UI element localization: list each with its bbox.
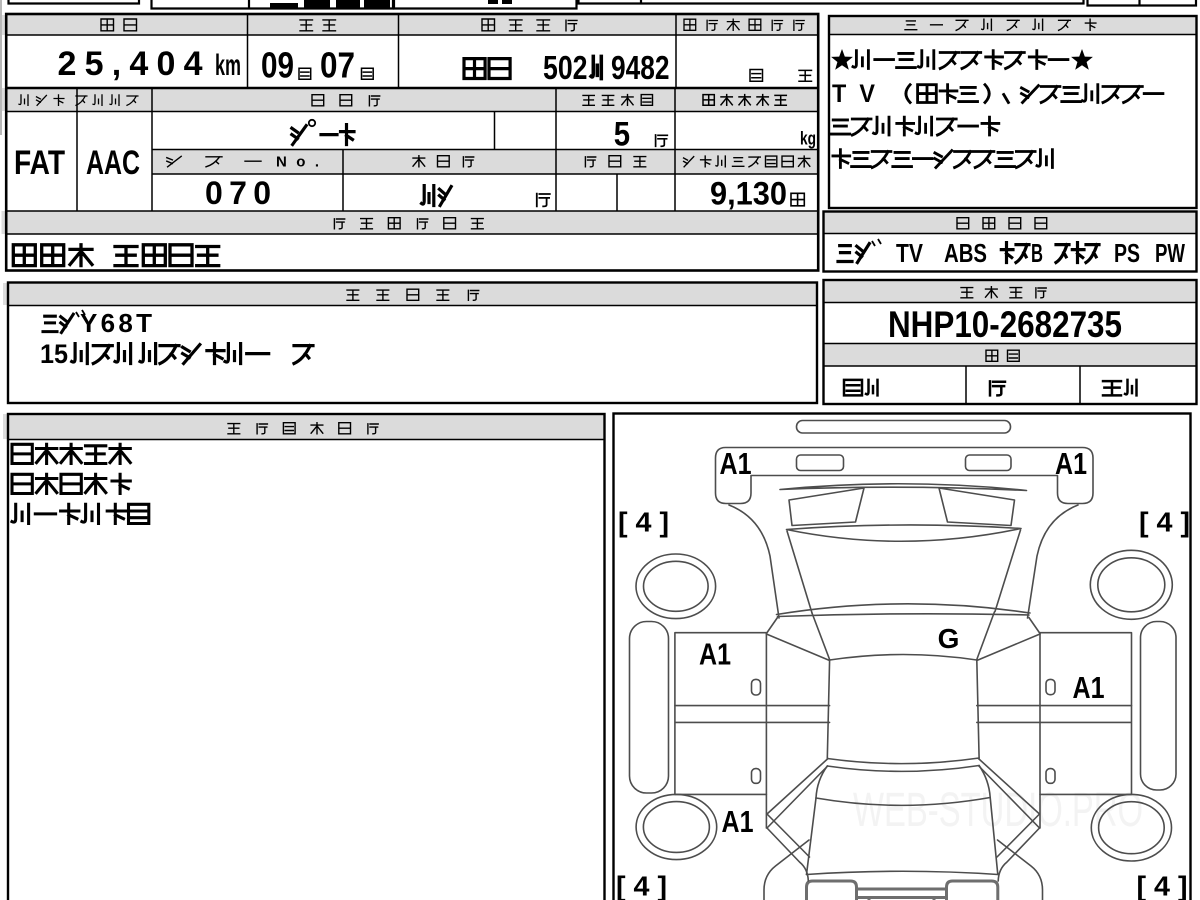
- svg-text:A1: A1: [1073, 670, 1105, 705]
- svg-text:WEB-STUDIO.PRO: WEB-STUDIO.PRO: [853, 784, 1143, 837]
- svg-text:PW: PW: [1155, 238, 1185, 268]
- svg-text:TV: TV: [896, 238, 924, 268]
- svg-text:AAC: AAC: [86, 144, 140, 182]
- svg-text:PS: PS: [1114, 238, 1140, 268]
- svg-text:km: km: [215, 49, 241, 82]
- svg-text:A1: A1: [720, 446, 752, 481]
- svg-text:09: 09: [261, 45, 294, 86]
- svg-text:A1: A1: [1055, 446, 1087, 481]
- svg-text:15: 15: [40, 339, 68, 369]
- svg-text:[ 4 ]: [ 4 ]: [1139, 507, 1190, 538]
- svg-text:G: G: [938, 623, 960, 654]
- svg-text:5: 5: [614, 116, 630, 154]
- svg-text:Y68T: Y68T: [80, 308, 152, 338]
- svg-text:No.: No.: [276, 154, 322, 171]
- svg-text:25,404: 25,404: [58, 45, 203, 83]
- svg-text:kg: kg: [800, 129, 816, 149]
- svg-text:[ 4 ]: [ 4 ]: [618, 507, 669, 538]
- svg-text:[ 4 ]: [ 4 ]: [1137, 871, 1188, 900]
- svg-text:FAT: FAT: [14, 144, 65, 182]
- svg-text:502: 502: [543, 49, 588, 86]
- svg-text:TV: TV: [832, 80, 888, 108]
- svg-text:NHP10-2682735: NHP10-2682735: [888, 304, 1122, 345]
- svg-text:B: B: [1031, 238, 1043, 268]
- svg-text:A1: A1: [699, 637, 731, 672]
- svg-text:070: 070: [205, 175, 271, 211]
- svg-text:ABS: ABS: [944, 238, 987, 268]
- svg-text:9482: 9482: [611, 49, 670, 86]
- svg-text:[ 4 ]: [ 4 ]: [616, 871, 667, 900]
- svg-text:9,130: 9,130: [710, 176, 787, 212]
- svg-text:07: 07: [320, 45, 355, 86]
- svg-text:A1: A1: [722, 804, 754, 839]
